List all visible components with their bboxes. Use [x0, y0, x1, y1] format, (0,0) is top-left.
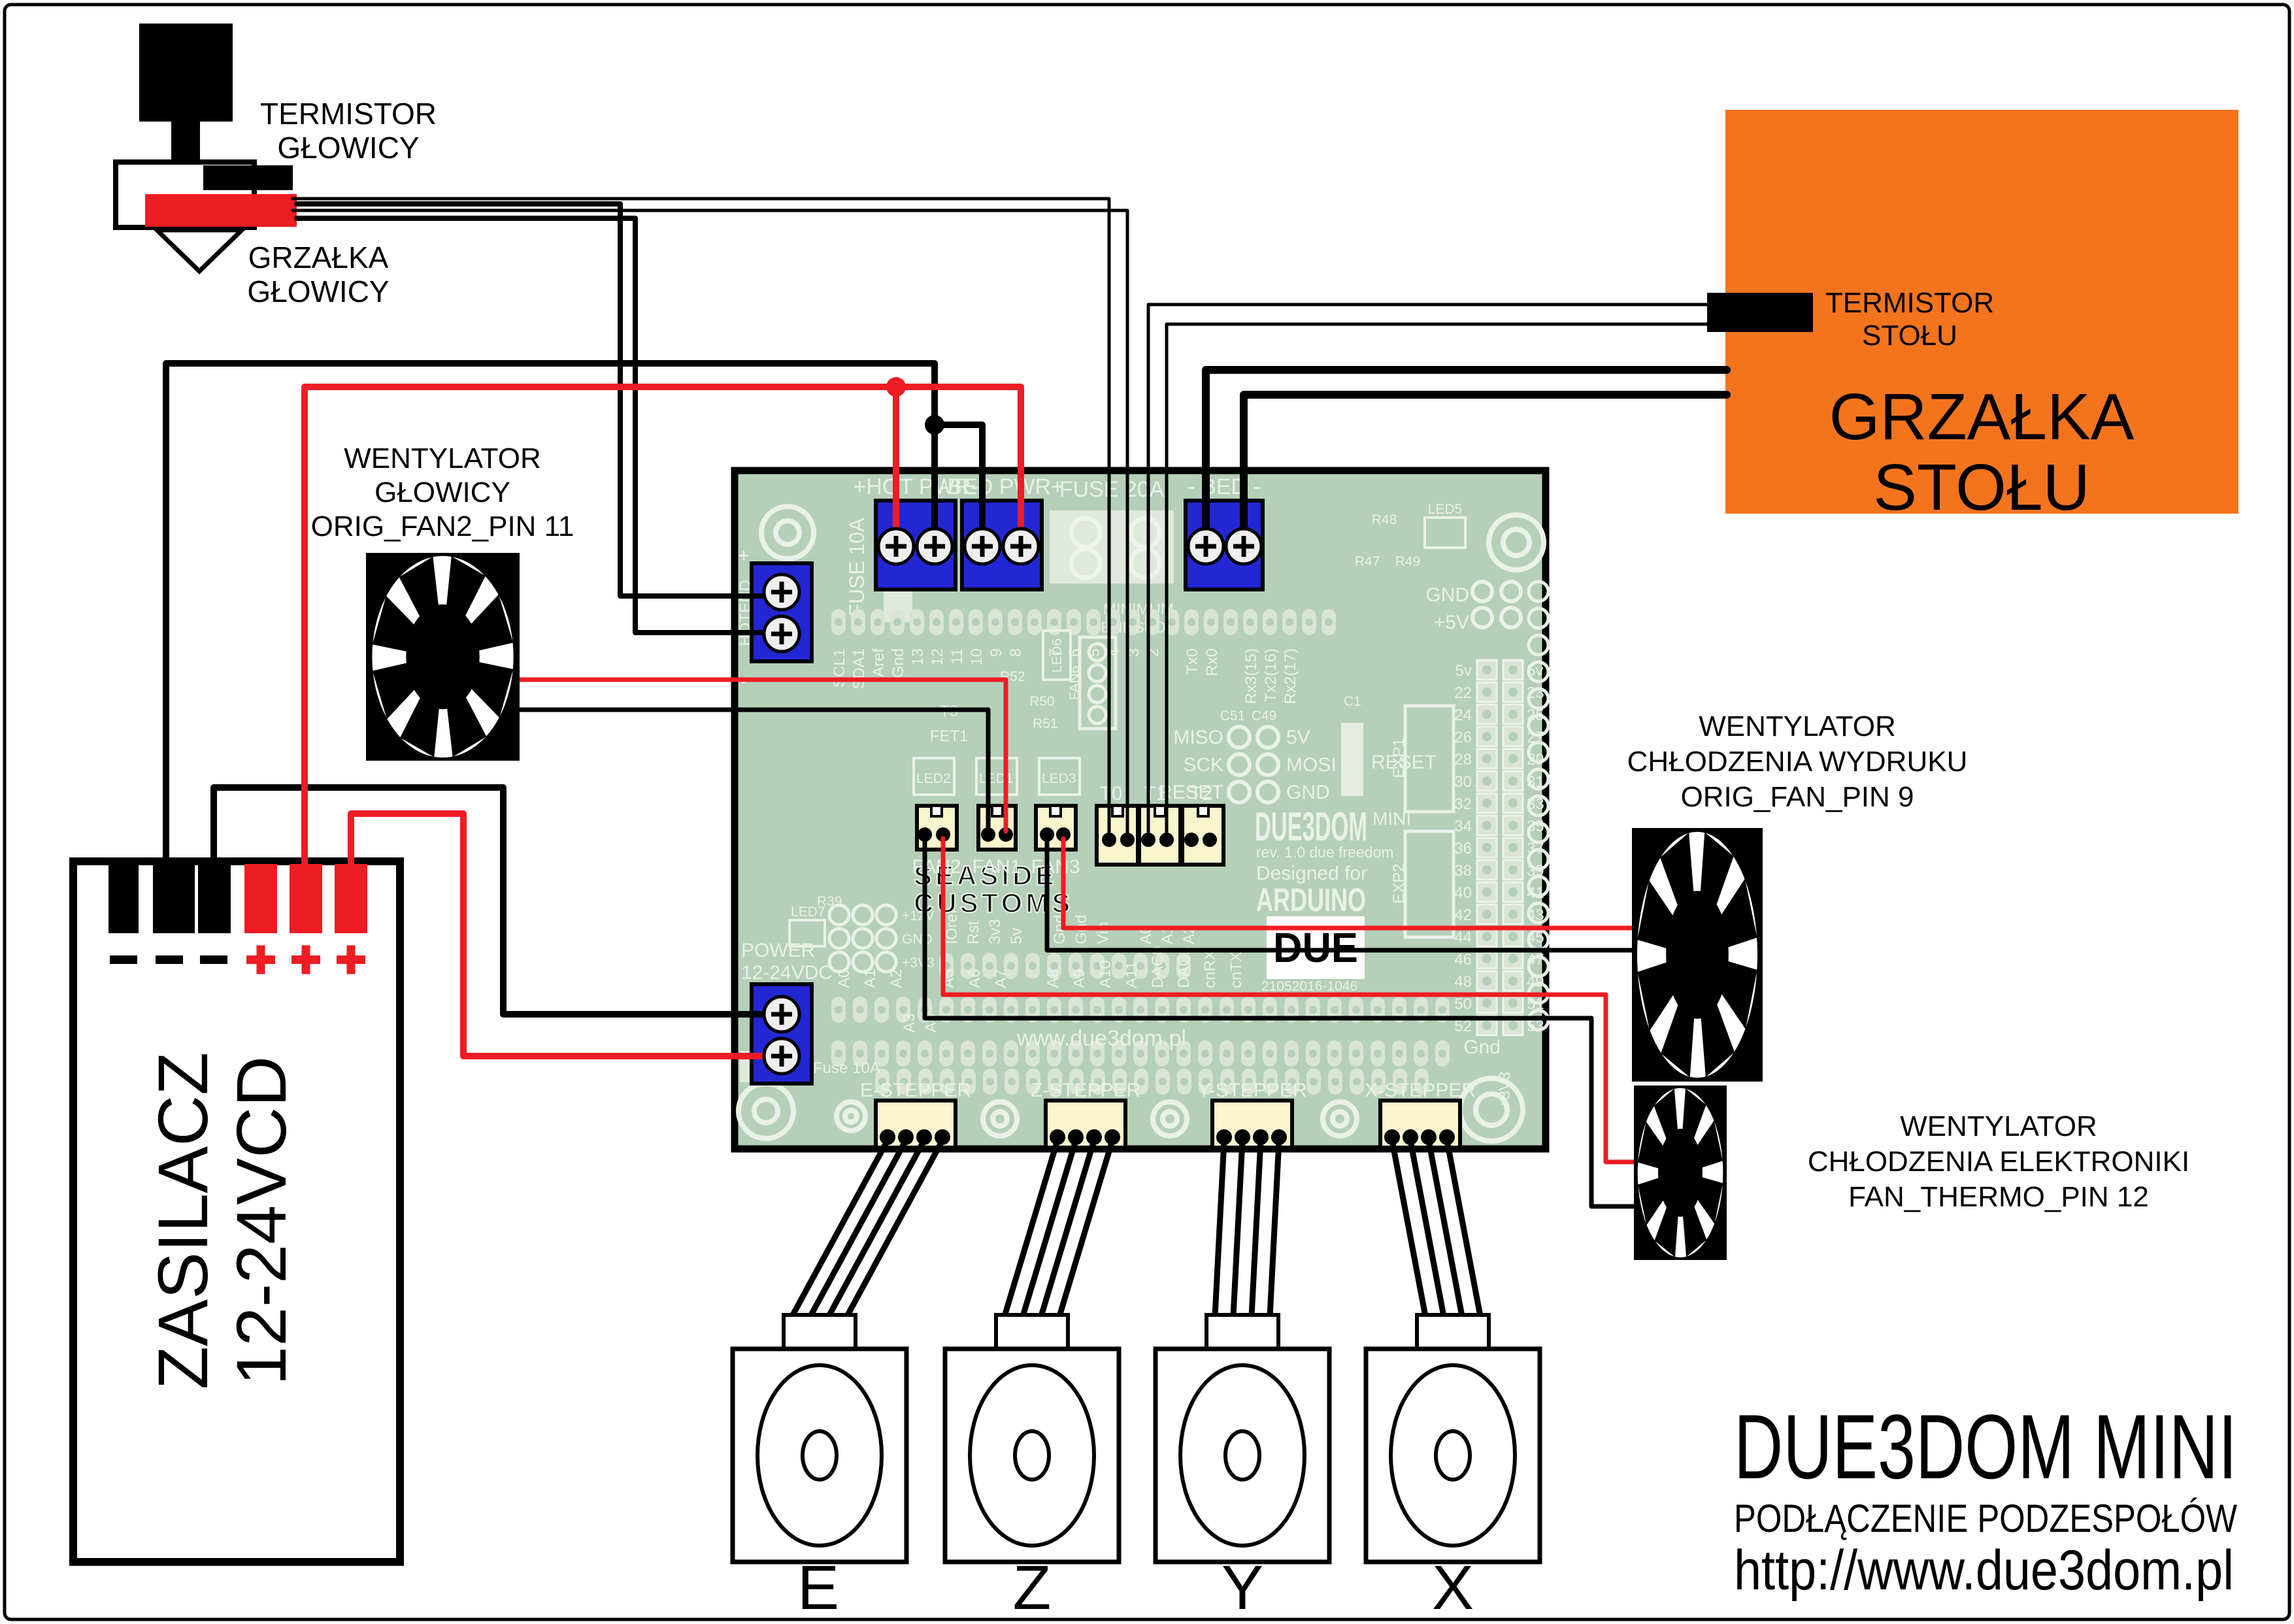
hotend-thermistor-label-1: TERMISTOR [260, 97, 437, 131]
miso-label: MISO [1173, 727, 1223, 748]
p12v-label: +12V [902, 908, 935, 923]
analog-row-label: cnTX [1227, 952, 1245, 988]
wire-psu-pos-power [351, 814, 766, 1056]
due-text: DUE [1273, 924, 1358, 971]
top-pin-label: 10 [968, 648, 986, 666]
top-pin-label: 11 [948, 648, 966, 665]
5v-label: 5V [1286, 727, 1310, 748]
motor-tab [1417, 1315, 1489, 1350]
fan2-label: FAN2 [912, 856, 961, 878]
minus-sign [110, 955, 137, 964]
right-pin-num: 46 [1454, 951, 1472, 969]
stepper-letter-e: E [797, 1553, 839, 1623]
led2-label: LED2 [916, 771, 951, 786]
headfan-label-2: GŁOWICY [374, 476, 510, 508]
fan-hub [1666, 891, 1729, 1019]
right-pin-num: 37 [1527, 840, 1544, 857]
led6-label: LED6 [1050, 638, 1065, 673]
top-pin-label: Rx2(17) [1282, 648, 1299, 704]
hotend-thermistor-label-2: GŁOWICY [277, 131, 419, 165]
right-pin-num: 26 [1454, 729, 1472, 746]
c49-label: C49 [1252, 708, 1277, 723]
led5-label: LED5 [1428, 502, 1463, 517]
top-pin-label: 9 [988, 648, 1005, 657]
top-pin-label: Gnd [889, 648, 907, 678]
bed-thermistor-label-1: TERMISTOR [1825, 287, 1994, 319]
rev-text: rev. 1.0 due freedom [1256, 844, 1394, 861]
right-pin-num: 42 [1454, 906, 1472, 924]
fuse10-side-label: FUSE 10A [845, 518, 869, 617]
r48-label: R48 [1372, 512, 1397, 527]
stepper-wire [1233, 1140, 1242, 1316]
top-pin-label: SDA1 [850, 648, 868, 689]
psu-terminal-neg2 [153, 864, 195, 933]
psu-label-line2: 12-24VCD [222, 1056, 301, 1385]
rowb-label: A3 [901, 1014, 918, 1033]
minus-sign [200, 955, 227, 964]
top-pin-label: Tx2(16) [1262, 648, 1280, 703]
led3-label: LED3 [1042, 771, 1076, 786]
bed-pwr-label: -BED PWR+ [940, 474, 1064, 499]
fan2-notch [931, 806, 942, 816]
stepper-letter-y: Y [1222, 1553, 1263, 1623]
mini-text: MINI [1372, 808, 1411, 829]
analog-row-label: DAC1 [1175, 946, 1193, 988]
right-pin-num: 34 [1454, 818, 1472, 835]
printfan-label-1: WENTYLATOR [1699, 710, 1896, 742]
hotend-heater-cartridge [145, 194, 297, 227]
right-pin-num: 49 [1527, 973, 1544, 991]
psu-terminal-pos1 [244, 864, 277, 933]
right-pin-num: 33 [1527, 795, 1544, 813]
r49-label: R49 [1395, 554, 1421, 569]
r51-label: R51 [1033, 716, 1058, 731]
bed-heater-label-1: GRZAŁKA [1829, 380, 2135, 454]
right-pin-num: 5v [1455, 662, 1472, 680]
analog-row-label: cnRX [1201, 950, 1219, 988]
bed-thermistor [1707, 293, 1813, 332]
analog-row-label: A9 [1071, 969, 1088, 988]
customs-text: CUSTOMS [914, 887, 1073, 918]
right-pin-num: 50 [1454, 995, 1472, 1013]
psu-terminal-pos3 [335, 864, 367, 933]
exp1-label: EXP1 [1390, 738, 1408, 778]
elecfan-label-3: FAN_THERMO_PIN 12 [1848, 1181, 2149, 1213]
top-pin-label: 12 [929, 648, 946, 666]
power-row-label: 5v [1008, 928, 1025, 944]
fan1-notch [992, 806, 1003, 816]
printfan-label-2: CHŁODZENIA WYDRUKU [1627, 746, 1968, 778]
bed-out-label: - BED - [1188, 474, 1260, 499]
exp2-label: EXP2 [1390, 863, 1408, 903]
stepper-wires [792, 1140, 1480, 1316]
fet1-label: FET1 [930, 727, 969, 745]
stepper-wire [1410, 1140, 1444, 1316]
title-line2: PODŁĄCZENIE PODZESPOŁÓW [1734, 1497, 2237, 1540]
right-pin-num: 29 [1527, 751, 1544, 769]
print-fan [1632, 828, 1763, 1082]
right-pin-num: 5v [1527, 662, 1543, 680]
fan6-label: FAN6 [1067, 666, 1082, 701]
top-pin-label: Tx0 [1184, 648, 1201, 674]
bed-thermistor-label-2: STOŁU [1862, 320, 1957, 352]
diagram-svg: TERMISTOR STOŁU GRZAŁKA STOŁU TERMISTOR … [0, 0, 2294, 1624]
title-line3: http://www.due3dom.pl [1734, 1539, 2234, 1602]
analog-row-label: A6 [966, 969, 984, 988]
headfan-label-1: WENTYLATOR [344, 442, 541, 474]
t0-notch [1112, 806, 1123, 816]
stepper-wire [1429, 1140, 1462, 1316]
url-silk-text: www.due3dom.pl [1016, 1026, 1186, 1051]
analog-row-label: DAC0 [1149, 946, 1167, 988]
stepper-wire [1447, 1140, 1480, 1316]
analog-row-label: A8 [1044, 969, 1062, 988]
right-pin-num: 36 [1454, 840, 1472, 857]
power-label-1: POWER [741, 940, 815, 961]
psu-terminal-neg1 [108, 864, 139, 933]
elecfan-label-2: CHŁODZENIA ELEKTRONIKI [1808, 1146, 2189, 1178]
power-row-label: 3v3 [986, 919, 1004, 944]
power-row-label: Rst [965, 921, 982, 944]
title-block: DUE3DOM MINI PODŁĄCZENIE PODZESPOŁÓW htt… [1734, 1395, 2237, 1602]
electronics-fan [1634, 1085, 1727, 1260]
t2-notch [1198, 806, 1208, 816]
right-pin-num: 44 [1454, 929, 1472, 946]
right-pin-num: 24 [1454, 706, 1472, 724]
bed-heater-label-2: STOŁU [1873, 451, 2090, 524]
r47-label: R47 [1355, 554, 1380, 569]
minus-sign [156, 955, 183, 964]
hotend: TERMISTOR GŁOWICY GRZAŁKA GŁOWICY [116, 24, 437, 308]
elecfan-label-1: WENTYLATOR [1900, 1110, 2097, 1142]
psu-terminal-pos2 [290, 864, 322, 933]
right-pin-num: 32 [1454, 795, 1472, 813]
fuse10b-label: Fuse 10A [813, 1059, 880, 1077]
top-pin-label: 8 [1007, 648, 1025, 657]
right-pin-num: 45 [1527, 929, 1544, 946]
right-pin-num: 23 [1527, 684, 1544, 702]
hotend-thermistor [203, 165, 293, 190]
v33b-label: +3V3 [902, 955, 935, 970]
hotend-heater-label-2: GŁOWICY [247, 274, 389, 308]
title-line1: DUE3DOM MINI [1734, 1395, 2237, 1498]
motor-tab [996, 1315, 1068, 1350]
c51-label: C51 [1220, 708, 1246, 723]
psu-label: ZASILACZ 12-24VCD [143, 1052, 301, 1389]
right-pin-num: 31 [1527, 773, 1544, 791]
motor-tab [784, 1315, 856, 1350]
stepper-letter-z: Z [1013, 1553, 1052, 1623]
headfan-label-3: ORIG_FAN2_PIN 11 [311, 510, 574, 542]
stepper-wire [1215, 1140, 1224, 1316]
hotend-heater-label-1: GRZAŁKA [248, 240, 389, 274]
right-pin-num: 25 [1527, 706, 1544, 724]
gnd-label: GND [1425, 584, 1469, 606]
led1-label: LED1 [979, 771, 1014, 786]
sck-label: SCK [1183, 754, 1223, 776]
top-pin-label: Aref [870, 648, 888, 677]
right-pin-num: 28 [1454, 751, 1472, 769]
reset-switch [1341, 723, 1363, 796]
right-pin-num: 39 [1527, 862, 1544, 880]
gnd2-label: GND [1286, 782, 1330, 803]
motor-tab [1206, 1315, 1278, 1350]
right-pin-num: 22 [1454, 684, 1472, 702]
stepper-conn-label: Y-STEPPER [1197, 1080, 1306, 1101]
stepper-wire [1252, 1140, 1261, 1316]
r50-label: R50 [1029, 694, 1055, 709]
gndg-label: GND [902, 932, 933, 947]
analog-row-label: A11 [1123, 961, 1140, 988]
right-pin-num: 48 [1454, 973, 1472, 991]
t0-label: T0 [1099, 783, 1122, 804]
stepper-conn-label: Z-STEPPER [1031, 1080, 1140, 1101]
right-pin-num: 51 [1527, 995, 1544, 1013]
junction-dot-red [886, 377, 906, 397]
mosi-label: MOSI [1286, 754, 1337, 776]
p5v-label: +5V [1434, 612, 1469, 633]
fan-hub [406, 605, 479, 709]
wiring-diagram: TERMISTOR STOŁU GRZAŁKA STOŁU TERMISTOR … [0, 0, 2294, 1624]
right-pin-num: 38 [1454, 862, 1472, 880]
hotend-plus: + [738, 545, 750, 567]
fan3-notch [1050, 806, 1061, 816]
stepper-motors [733, 1315, 1540, 1562]
right-pin-num: 30 [1454, 773, 1472, 791]
right-pin-num: 41 [1527, 884, 1544, 902]
fan3-label: FAN3 [1031, 856, 1080, 878]
due3dom-board: +HOT PWR- -BED PWR+ FUSE 20A - BED - FUS… [735, 471, 1548, 1149]
power-row-label: Vin [1094, 922, 1112, 944]
stepper-wire [1270, 1140, 1279, 1316]
printfan-label-3: ORIG_FAN_PIN 9 [1680, 781, 1914, 813]
serial-text: 21052016-1046 [1261, 979, 1357, 994]
hotend-stem [171, 122, 200, 163]
analog-row-label: A10 [1097, 960, 1114, 988]
hotend-heatsink [139, 24, 233, 122]
fan-hub [1658, 1129, 1703, 1217]
t2-label: T2 [1189, 783, 1212, 804]
right-pin-num: 47 [1527, 951, 1544, 969]
due3dom-text: DUE3DOM [1255, 804, 1367, 850]
stepper-conn-label: X-STEPPER [1365, 1080, 1476, 1101]
stepper-conn-label: E-STEPPER [860, 1080, 971, 1101]
top-pin-label: 13 [909, 648, 927, 666]
top-pin-label: Rx3(15) [1242, 648, 1260, 704]
power-supply: ZASILACZ 12-24VCD [73, 861, 400, 1562]
stepper-wire [1392, 1140, 1425, 1316]
arduino-text: ARDUINO [1256, 882, 1366, 918]
head-fan [366, 553, 520, 761]
gnd-low-label: Gnd [1463, 1036, 1501, 1058]
right-pin-num: 43 [1527, 906, 1544, 924]
v33-label: +3V3 [1496, 1072, 1514, 1109]
c1-label: C1 [1344, 694, 1361, 709]
plus-signs [246, 946, 365, 974]
psu-label-line1: ZASILACZ [143, 1052, 222, 1389]
psu-terminal-neg3 [198, 864, 231, 933]
stepper-letter-x: X [1432, 1553, 1474, 1623]
right-pin-num: 40 [1454, 884, 1472, 902]
right-pin-num: 35 [1527, 818, 1544, 835]
junction-dot-black [925, 415, 944, 435]
power-label-2: 12-24VDC [741, 962, 833, 984]
top-pin-label: Rx0 [1203, 648, 1221, 676]
hotend-nozzle [157, 230, 242, 271]
analog-row-label: A7 [992, 969, 1010, 988]
t1-notch [1155, 806, 1165, 816]
fan1-label: FAN1 [972, 856, 1021, 878]
right-pin-num: 27 [1527, 729, 1544, 746]
